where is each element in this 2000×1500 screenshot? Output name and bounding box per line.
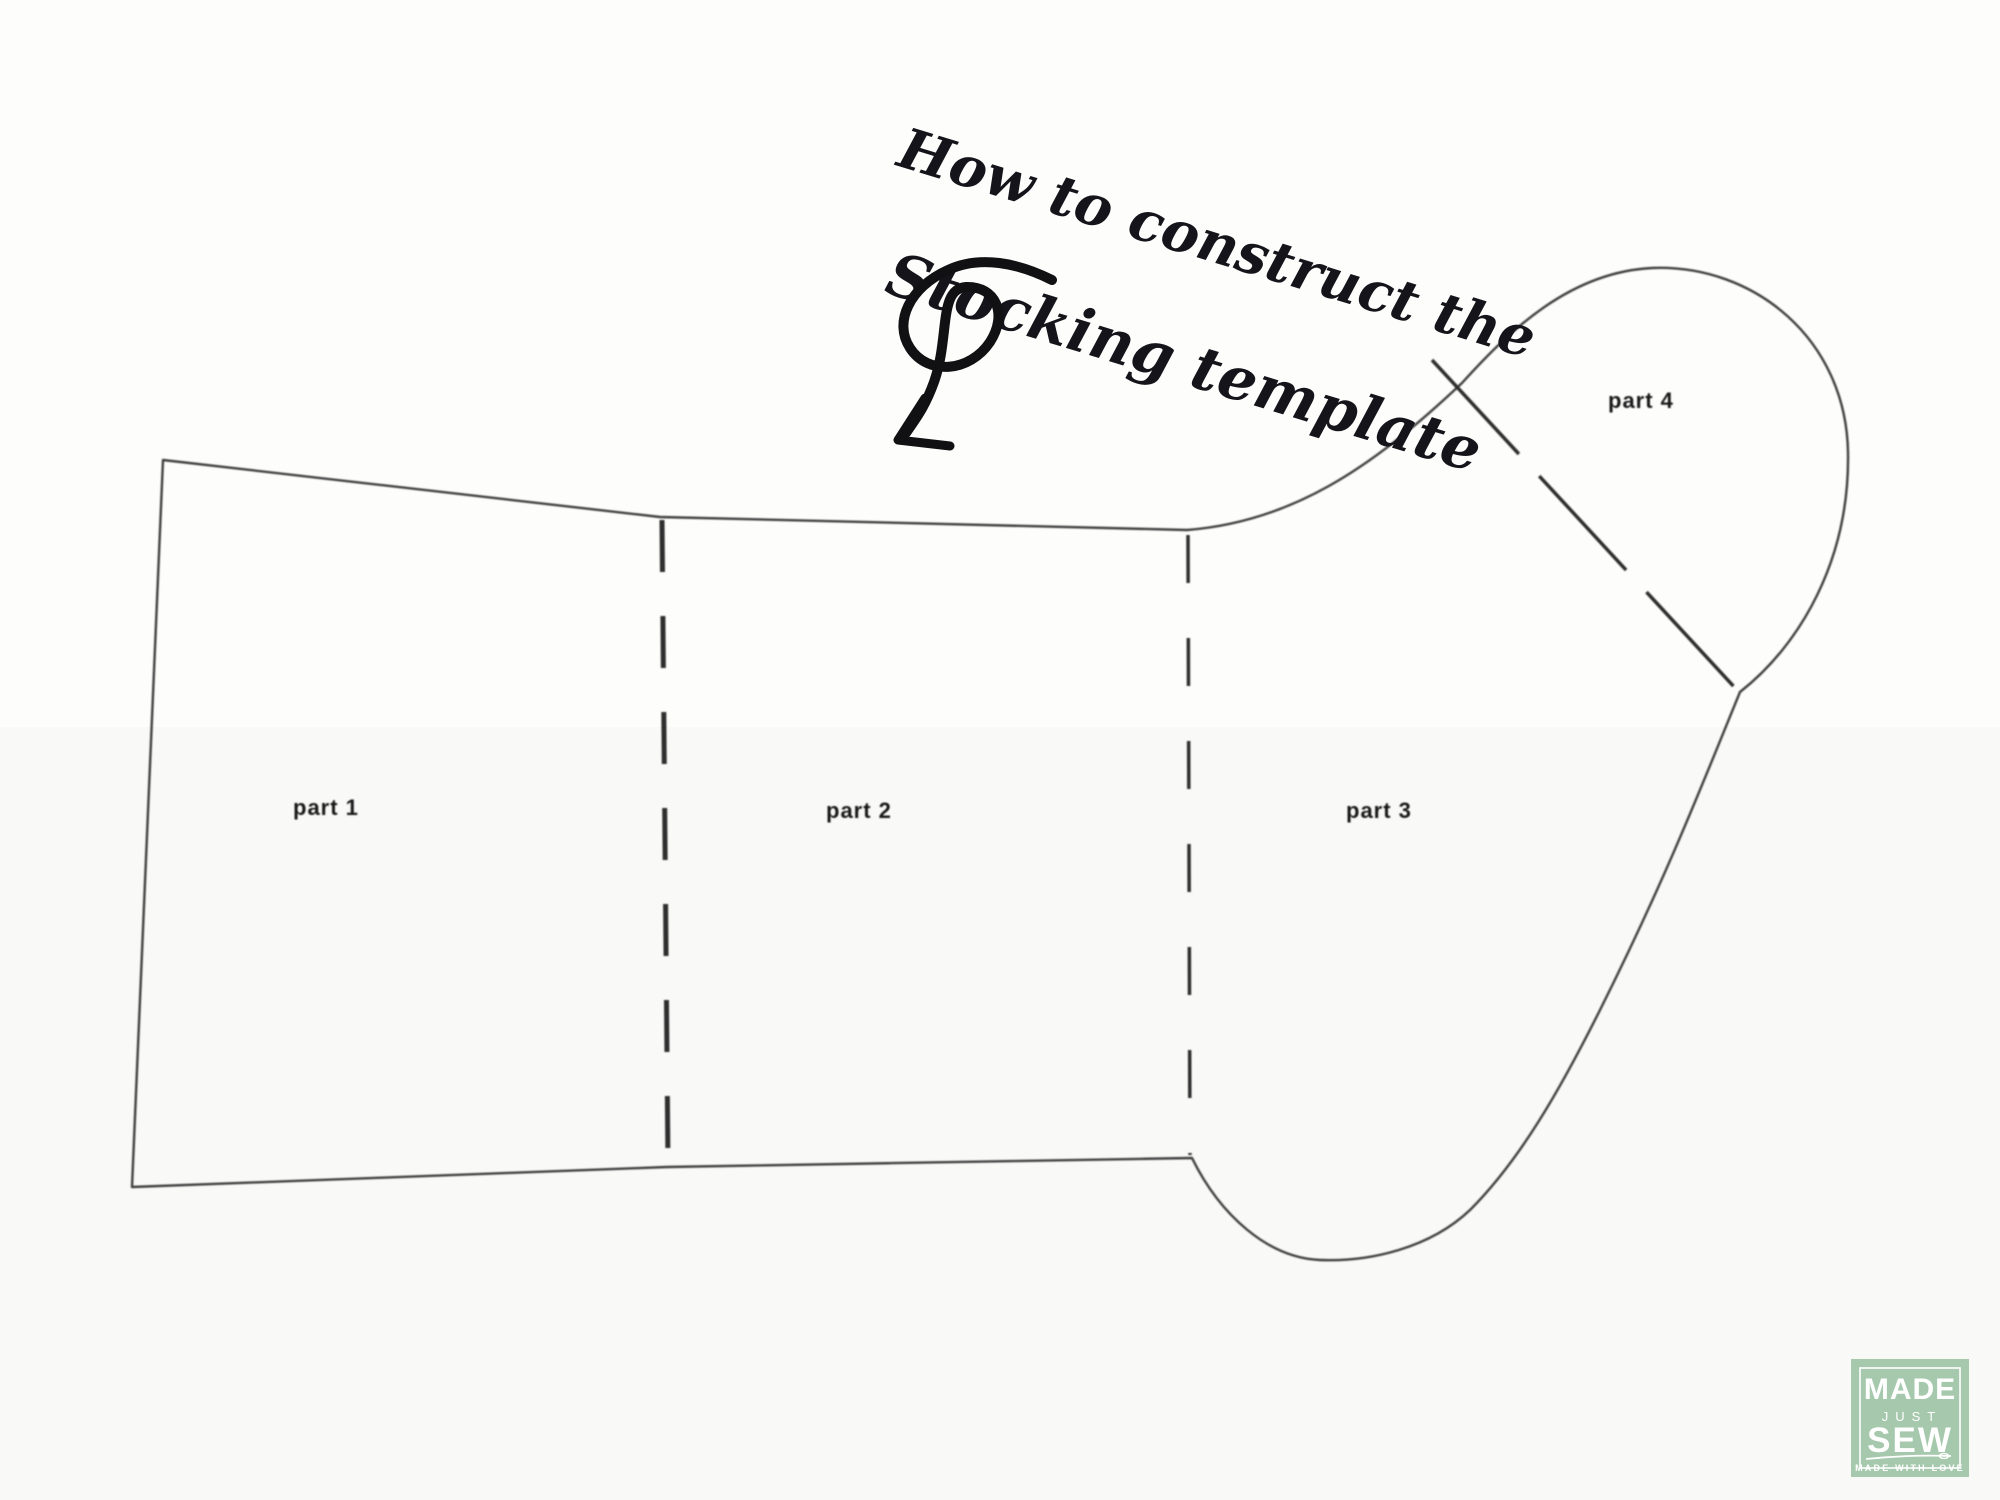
part-4-label: part 4 [1608, 388, 1674, 413]
fold-line-part2-part3 [1188, 535, 1190, 1155]
page-title: How to construct the Stocking template [879, 115, 1544, 487]
scan-artifact-band [0, 727, 2000, 1500]
part-3-label: part 3 [1346, 798, 1412, 823]
part-2-label: part 2 [826, 798, 892, 823]
stocking-template-page: part 1 part 2 part 3 part 4 How to const… [0, 0, 2000, 1500]
logo-tagline: MADE WITH LOVE [1855, 1463, 1965, 1473]
fold-line-part3-part4 [1432, 360, 1737, 690]
brand-logo: MADE JUST SEW MADE WITH LOVE [1851, 1359, 1969, 1477]
stocking-diagram-canvas: part 1 part 2 part 3 part 4 How to const… [0, 0, 2000, 1500]
part-1-label: part 1 [293, 795, 359, 820]
logo-word-made: MADE [1864, 1373, 1956, 1406]
